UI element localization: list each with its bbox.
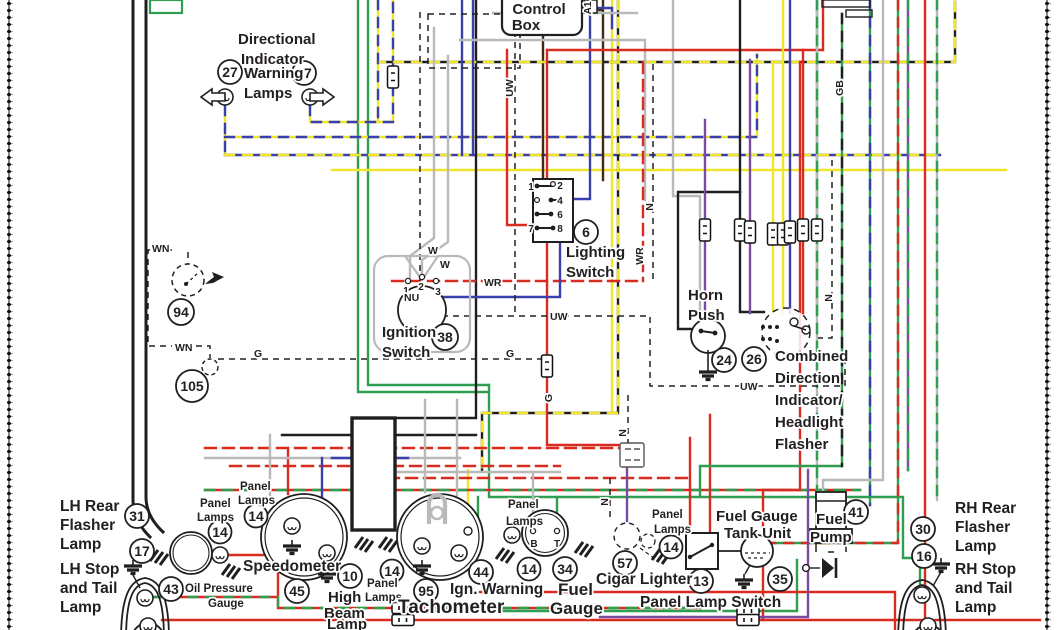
wire-label-wr-1: WR <box>484 277 502 289</box>
callout-10: 10 <box>338 564 362 588</box>
panel-lamps-a-label-1: Panel <box>200 498 231 510</box>
lighting-switch-label-1: Lighting <box>566 244 625 261</box>
lighting-switch-symbol <box>533 179 573 242</box>
dir-warning-label-3: Warning <box>244 65 303 82</box>
callout-text: 17 <box>134 543 150 559</box>
callout-45: 45 <box>285 579 309 603</box>
wire-label-n-2: N <box>823 294 835 302</box>
callout-17: 17 <box>130 539 154 563</box>
callout-text: 14 <box>212 524 228 540</box>
wire-label-gb: GB <box>834 80 846 96</box>
rh-stop-label-1: RH Stop <box>955 561 1016 578</box>
item94-symbol <box>172 264 224 296</box>
callout-14-b: 14 <box>245 505 268 528</box>
callout-text: 16 <box>916 548 932 564</box>
dir-warning-label-4: Lamps <box>244 85 292 102</box>
tank-unit-label-2: Tank Unit <box>724 525 791 542</box>
wire-label-uw-3: UW <box>504 79 516 97</box>
callout-34: 34 <box>553 557 577 581</box>
callout-text: 14 <box>521 561 537 577</box>
wire-label-n-1: N <box>644 203 656 211</box>
wire-label-g-1: G <box>254 348 262 360</box>
lighting-t4: 4 <box>557 196 563 207</box>
fuel-gauge-terminal-b: B <box>530 539 537 550</box>
callout-text: 105 <box>180 378 204 394</box>
cutoff-component-topright-1 <box>822 0 870 7</box>
callout-14-d: 14 <box>518 558 541 581</box>
callout-41: 41 <box>844 500 868 524</box>
right-film-edge <box>1045 0 1051 630</box>
wire-label-nu: NU <box>404 292 419 304</box>
cutoff-component-topleft <box>150 0 182 13</box>
callout-text: 38 <box>437 329 453 345</box>
wire-label-wn-1: WN <box>152 243 170 255</box>
panel-lamps-b-label-1: Panel <box>240 481 271 493</box>
callout-text: 14 <box>248 508 264 524</box>
callout-text: 43 <box>163 581 179 597</box>
cigar-lighter-label: Cigar Lighter <box>596 571 692 588</box>
cutoff-component-topright-2 <box>846 10 872 17</box>
panel-lamp-switch-label: Panel Lamp Switch <box>640 594 781 611</box>
rh-flasher-label-3: Lamp <box>955 538 996 555</box>
callout-text: 44 <box>473 564 489 580</box>
callout-text: 6 <box>582 224 590 240</box>
callout-16: 16 <box>912 544 936 568</box>
callout-27-left: 27 <box>218 60 242 84</box>
lh-flasher-label-1: LH Rear <box>60 498 119 515</box>
callout-26: 26 <box>742 347 766 371</box>
lighting-t8: 8 <box>557 224 563 235</box>
fuel-gauge-label-2: Gauge <box>550 599 603 618</box>
wire-label-w-1: W <box>428 245 438 257</box>
rh-stop-label-2: and Tail <box>955 580 1012 597</box>
callout-text: 34 <box>557 561 573 577</box>
high-beam-label-1: High <box>328 589 361 606</box>
lighting-t6: 6 <box>557 210 563 221</box>
callout-text: 14 <box>384 563 400 579</box>
wiring-diagram-canvas: 27 27 6 38 24 26 94 105 31 17 43 14 14 4… <box>0 0 1064 630</box>
panel-lamps-e-label-2: Lamps <box>654 524 691 536</box>
control-box-terminal-a1: A1 <box>583 1 594 14</box>
wire-label-wn-2: WN <box>175 342 193 354</box>
combined-label-1: Combined <box>775 348 848 365</box>
panel-lamps-b-label-2: Lamps <box>238 495 275 507</box>
callout-94: 94 <box>168 299 194 325</box>
fuel-gauge-label-1: Fuel <box>558 580 593 599</box>
item105-symbol <box>202 359 218 375</box>
callout-6: 6 <box>574 220 598 244</box>
dir-warning-label-1: Directional <box>238 31 316 48</box>
wire-label-uw-1: UW <box>550 311 568 323</box>
combined-label-5: Flasher <box>775 436 829 453</box>
panel-lamps-c-label-1: Panel <box>367 578 398 590</box>
fuel-pump-label-2: Pump <box>810 529 852 546</box>
horn-label-2: Push <box>688 307 725 324</box>
callout-text: 45 <box>289 583 305 599</box>
callout-text: 26 <box>746 351 762 367</box>
ignition-label-1: Ignition <box>382 324 436 341</box>
callout-text: 35 <box>772 571 788 587</box>
callout-text: 14 <box>663 539 679 555</box>
wire-label-n-4: N <box>599 498 611 506</box>
wire-indicator-yellow-blue <box>225 0 1006 170</box>
callout-13: 13 <box>689 569 713 593</box>
wire-label-g-2: G <box>506 348 514 360</box>
wire-label-g-3: G <box>543 394 555 402</box>
wire-black-left-pair <box>133 0 163 537</box>
lh-stop-label-3: Lamp <box>60 599 101 616</box>
lh-stop-label-1: LH Stop <box>60 561 119 578</box>
callout-text: 30 <box>915 521 931 537</box>
callout-text: 10 <box>342 568 358 584</box>
panel-lamps-c-label-2: Lamps <box>365 592 402 604</box>
callout-30: 30 <box>911 517 935 541</box>
callout-35: 35 <box>768 567 792 591</box>
lighting-t2: 2 <box>557 181 563 192</box>
callout-text: 41 <box>848 504 864 520</box>
lighting-switch-label-2: Switch <box>566 264 614 281</box>
lever-arrow-icon <box>205 272 224 284</box>
oil-gauge-label-2: Gauge <box>208 598 244 610</box>
ignition-t3: 3 <box>435 287 441 298</box>
panel-lamps-d-label-1: Panel <box>508 499 539 511</box>
callout-24: 24 <box>712 348 736 372</box>
callout-105: 105 <box>176 370 208 402</box>
callout-14-e: 14 <box>660 536 683 559</box>
callout-31: 31 <box>125 504 149 528</box>
ign-warning-label: Ign. Warning <box>450 581 543 598</box>
left-film-edge <box>7 0 13 630</box>
wire-label-wr-2: WR <box>634 247 646 265</box>
rh-flasher-label-1: RH Rear <box>955 500 1016 517</box>
oil-gauge-label-1: Oil Pressure <box>185 583 253 595</box>
lighting-t1: 1 <box>528 182 534 193</box>
callout-text: 31 <box>129 508 145 524</box>
combined-label-2: Direction <box>775 370 840 387</box>
callout-text: 57 <box>617 555 633 571</box>
wire-label-w-2: W <box>440 259 450 271</box>
fuel-pump-label-1: Fuel <box>816 511 847 528</box>
tank-unit-label-1: Fuel Gauge <box>716 508 798 525</box>
lh-flasher-label-3: Lamp <box>60 536 101 553</box>
callout-text: 94 <box>173 304 189 320</box>
combined-label-3: Indicator/ <box>775 392 843 409</box>
high-beam-label-3: Lamp <box>327 616 367 630</box>
control-box-label-2: Box <box>512 17 541 34</box>
wire-top-centre-bundle <box>380 0 955 515</box>
wiring-diagram-page: 27 27 6 38 24 26 94 105 31 17 43 14 14 4… <box>0 0 1064 630</box>
lh-stop-label-2: and Tail <box>60 580 117 597</box>
callout-43: 43 <box>159 577 183 601</box>
panel-lamps-d-label-2: Lamps <box>506 516 543 528</box>
horn-label-1: Horn <box>688 287 723 304</box>
combined-label-4: Headlight <box>775 414 843 431</box>
rh-stop-label-3: Lamp <box>955 599 996 616</box>
wire-label-n-3: N <box>617 429 629 437</box>
speedometer-label: Speedometer <box>243 558 341 575</box>
callout-text: 13 <box>693 573 709 589</box>
tachometer-label: Tachometer <box>398 597 505 618</box>
lighting-t7: 7 <box>528 224 534 235</box>
panel-lamps-a-label-2: Lamps <box>197 512 234 524</box>
rh-flasher-label-2: Flasher <box>955 519 1010 536</box>
panel-lamps-e-label-1: Panel <box>652 509 683 521</box>
lh-flasher-label-2: Flasher <box>60 517 115 534</box>
callout-text: 27 <box>222 64 238 80</box>
control-box-label-1: Control <box>512 1 565 18</box>
ignition-label-2: Switch <box>382 344 430 361</box>
wire-label-uw-2: UW <box>740 381 758 393</box>
callout-text: 24 <box>716 352 732 368</box>
fuel-gauge-terminal-t: T <box>554 539 560 550</box>
sender-box-symbol <box>352 418 397 552</box>
